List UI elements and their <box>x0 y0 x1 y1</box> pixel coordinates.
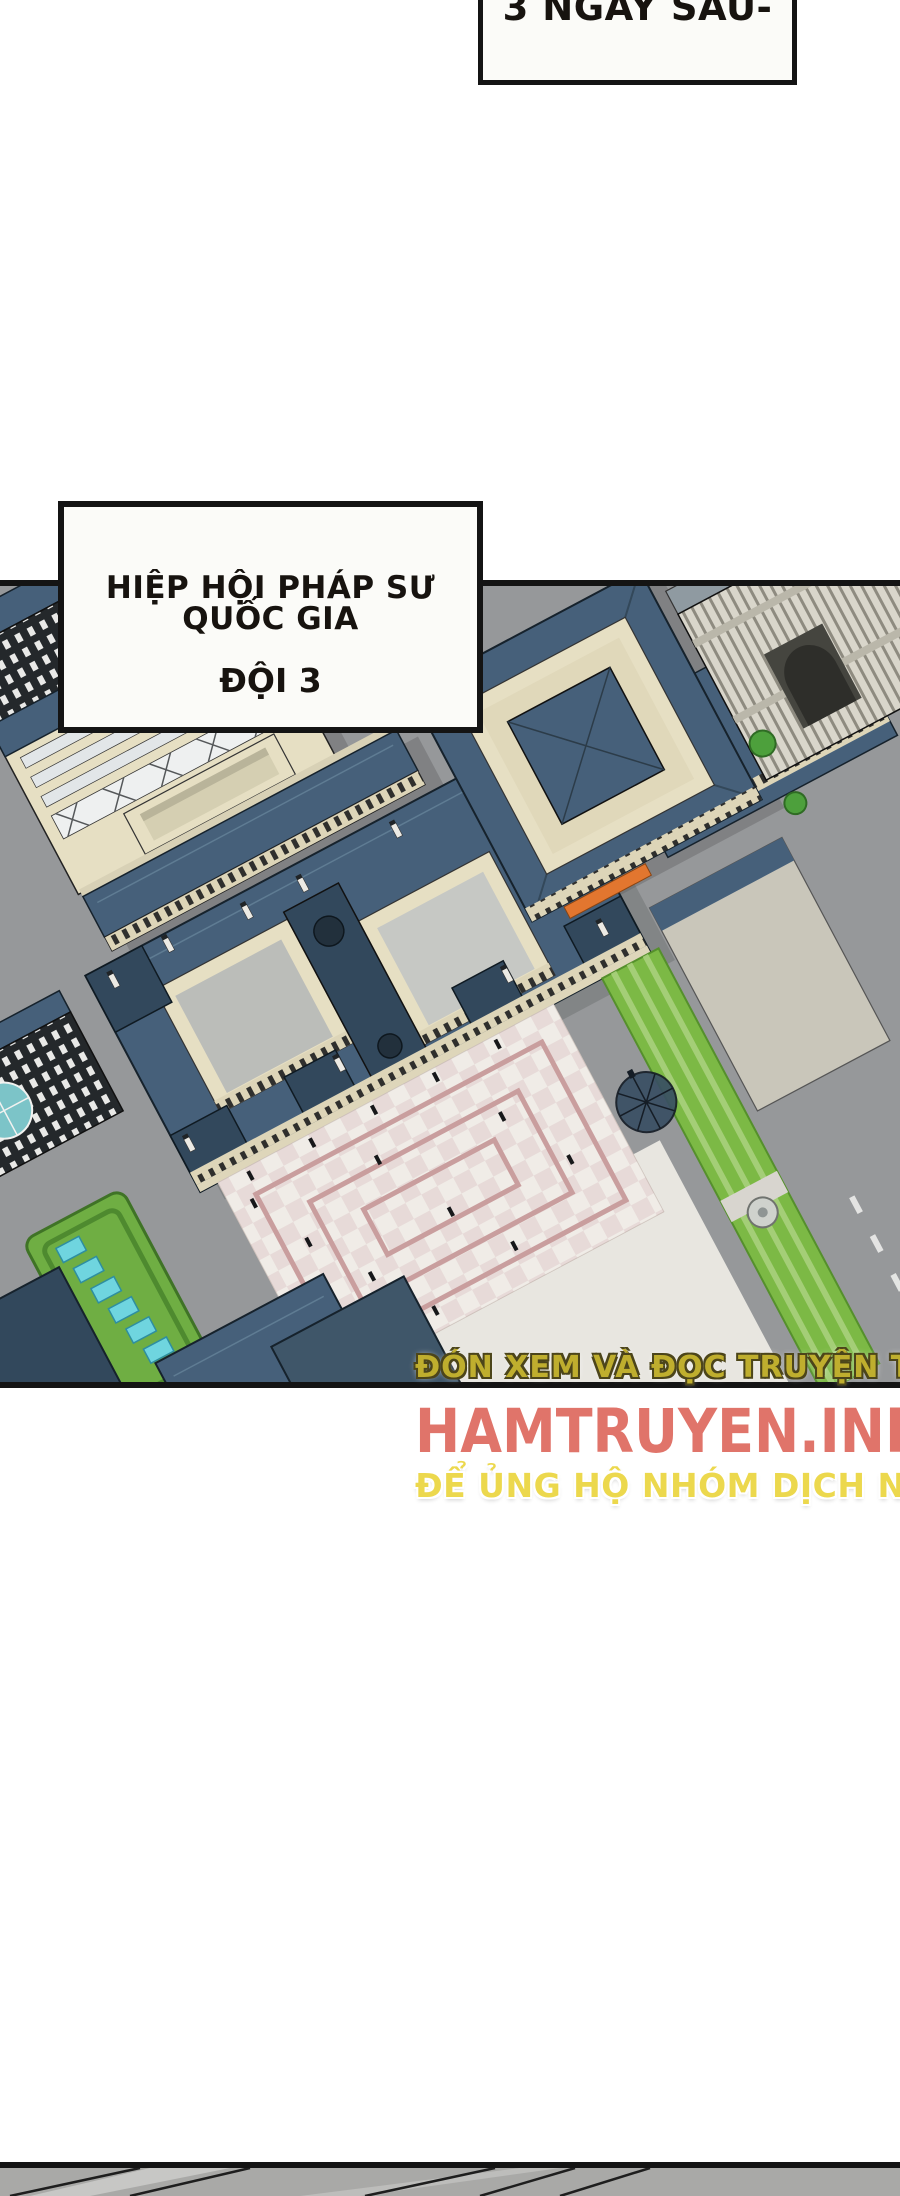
comic-page: 3 NGÀY SAU- HIỆP HỘI PHÁP SƯ QUỐC GIA ĐỘ… <box>0 0 900 2196</box>
watermark-site-name: HAMTRUYEN.INFO <box>415 1396 900 1467</box>
guild-name-line2: ĐỘI 3 <box>64 664 477 697</box>
next-panel-decor <box>0 2168 900 2196</box>
caption-box-guild: HIỆP HỘI PHÁP SƯ QUỐC GIA ĐỘI 3 <box>58 501 483 733</box>
watermark-promo-bottom: ĐỂ ỦNG HỘ NHÓM DỊCH NHÉ <box>415 1466 900 1505</box>
guild-name-line1: HIỆP HỘI PHÁP SƯ QUỐC GIA <box>64 573 477 635</box>
next-panel-sliver <box>0 2162 900 2196</box>
caption-box-timeskip: 3 NGÀY SAU- <box>478 0 797 85</box>
watermark-promo-top: ĐÓN XEM VÀ ĐỌC TRUYỆN TẠI <box>415 1350 900 1385</box>
timeskip-text: 3 NGÀY SAU- <box>503 0 773 29</box>
